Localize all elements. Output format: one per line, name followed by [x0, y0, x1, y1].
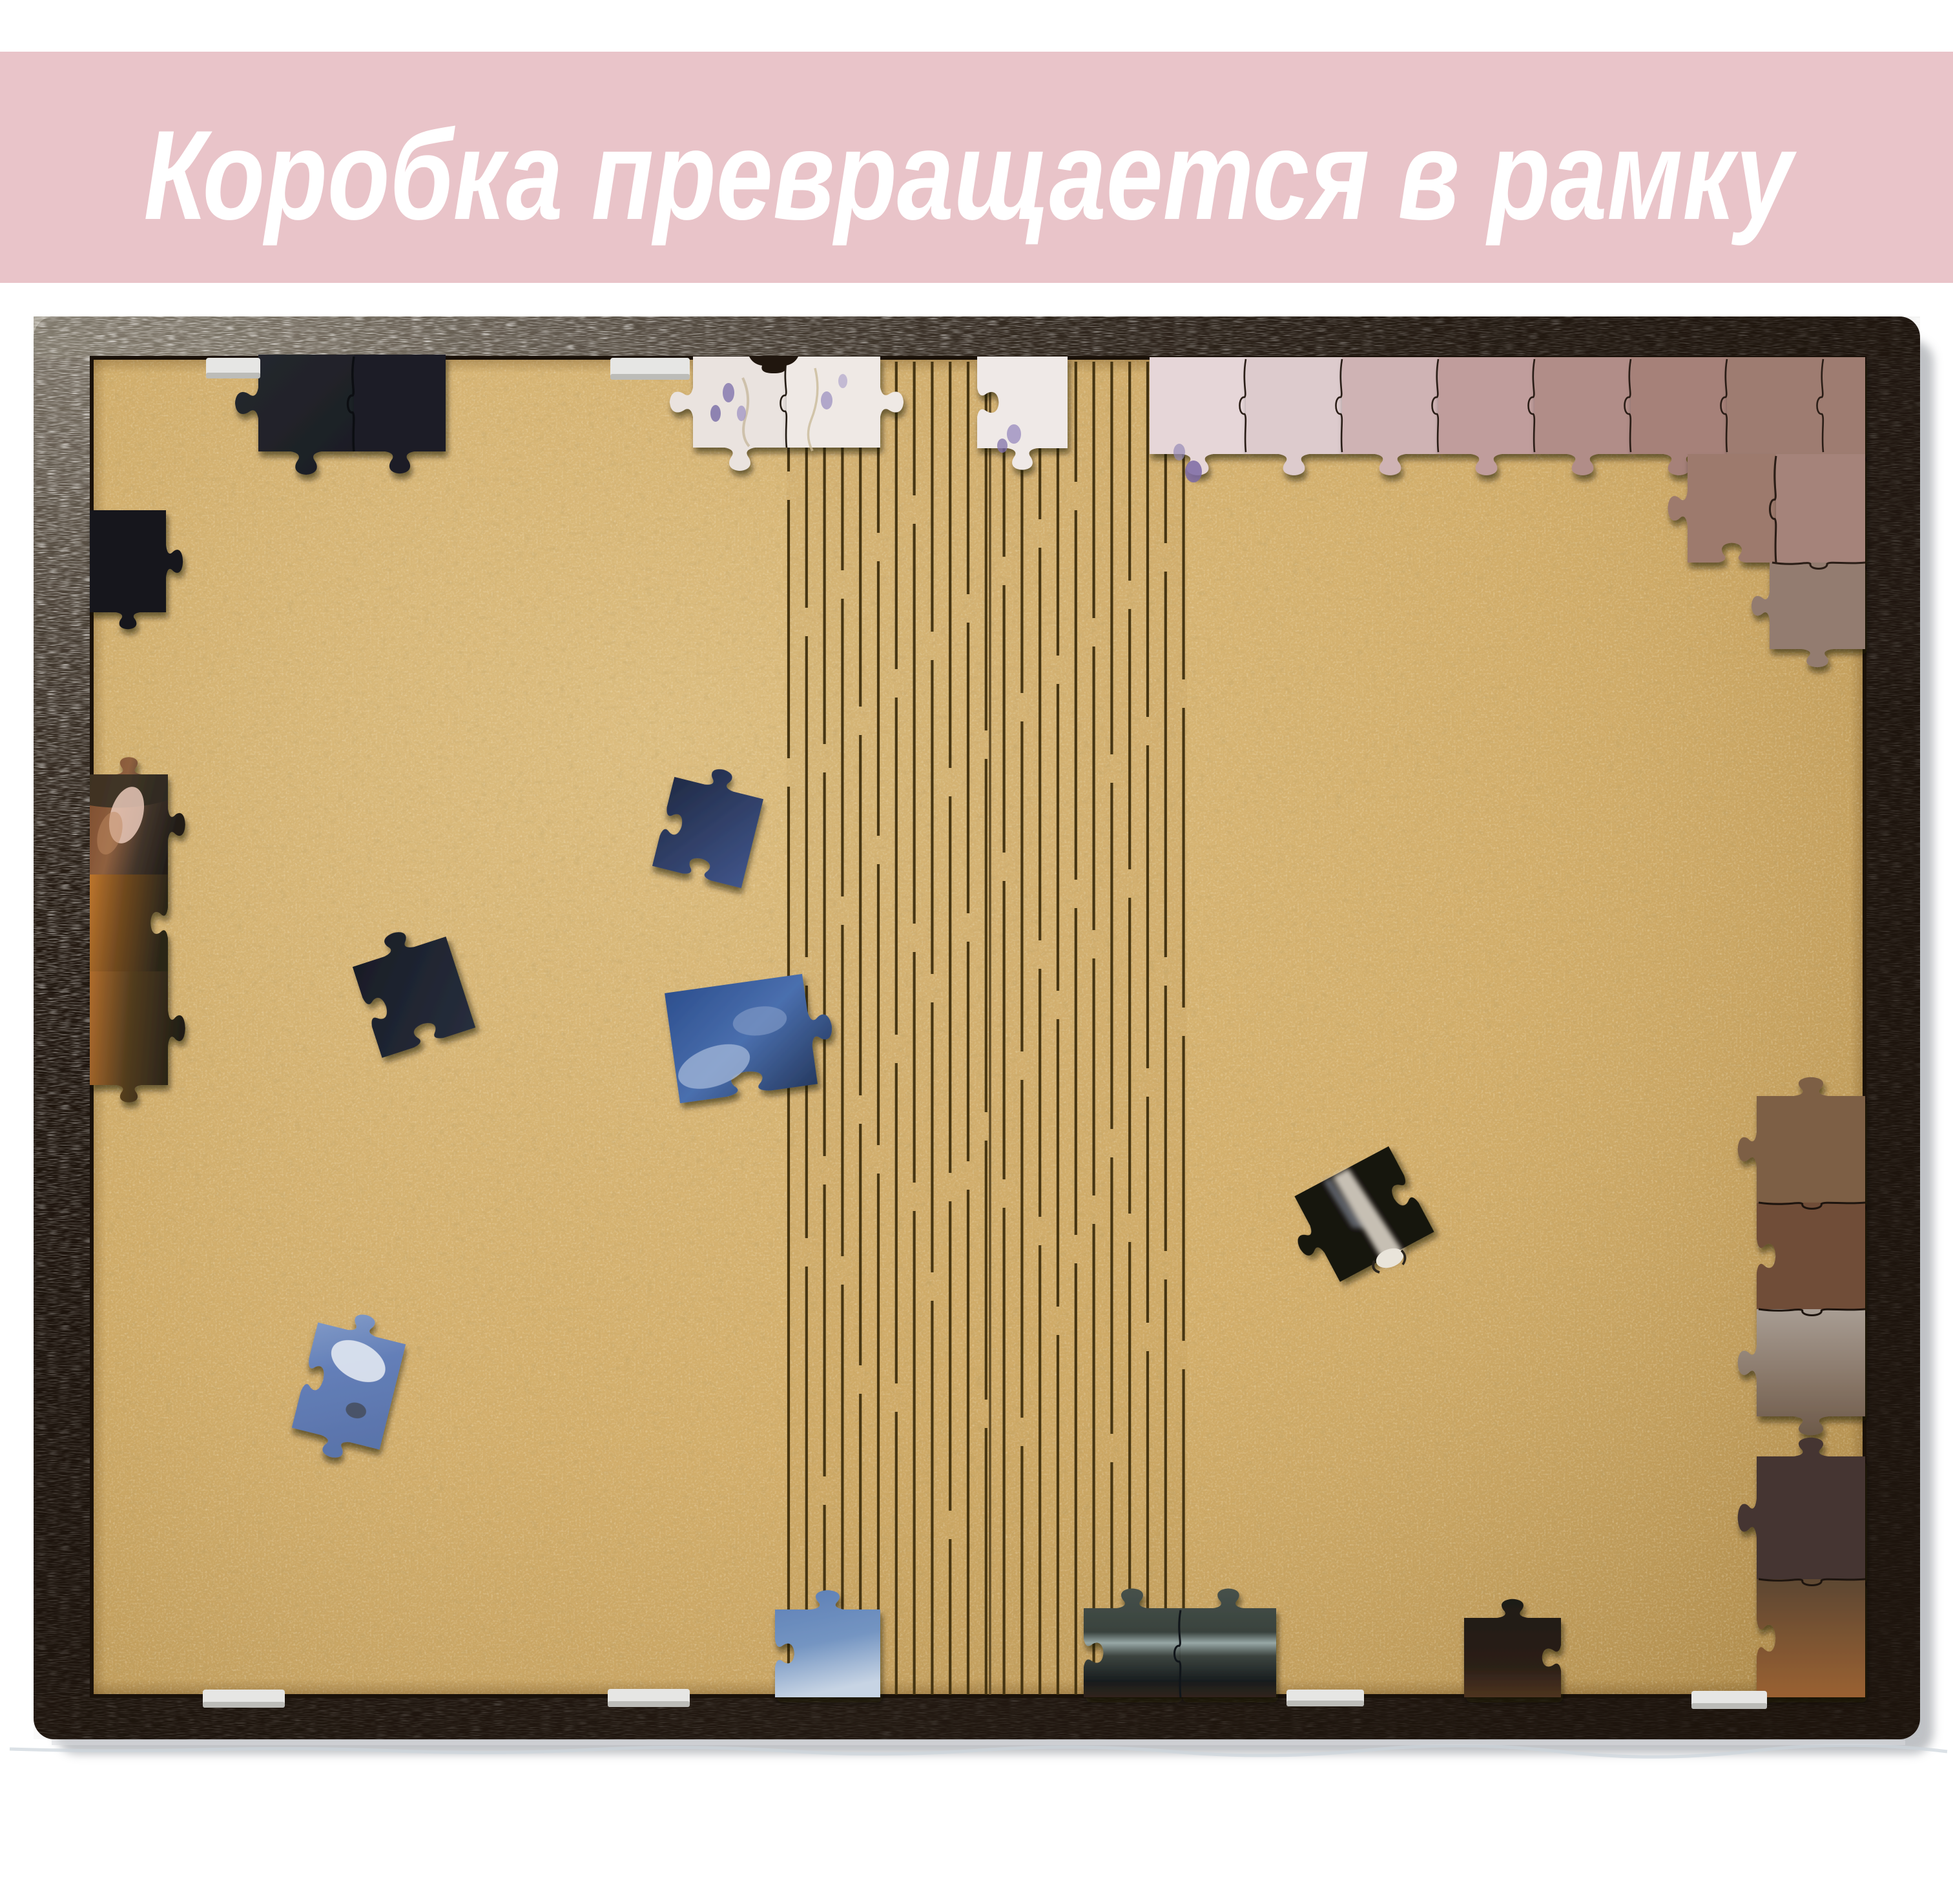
svg-text:Коробка превращается в рамку: Коробка превращается в рамку: [143, 103, 1797, 246]
